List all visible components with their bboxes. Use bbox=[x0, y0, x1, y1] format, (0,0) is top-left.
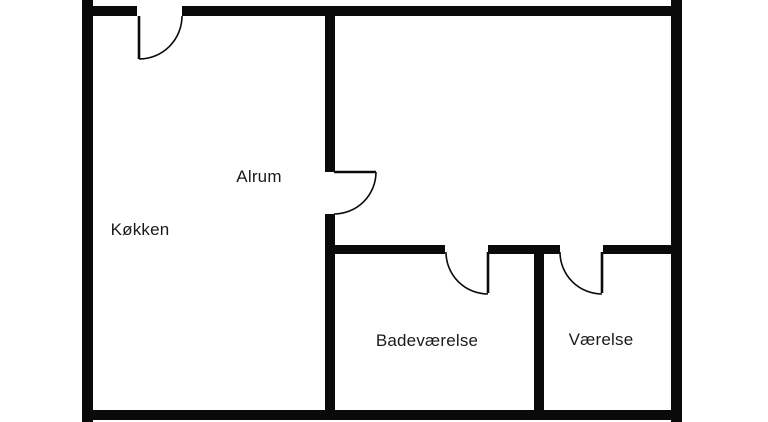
interior-wall-horizontal-segment-c bbox=[603, 245, 672, 254]
interior-wall-horizontal-segment-a bbox=[330, 245, 445, 254]
entry-door bbox=[139, 16, 182, 59]
outer-wall-right bbox=[671, 0, 682, 422]
badevaerelse-door bbox=[446, 252, 488, 294]
room-label-koekken: Køkken bbox=[111, 220, 170, 240]
vaerelse-door bbox=[560, 252, 602, 294]
interior-wall-horizontal-segment-b bbox=[488, 245, 560, 254]
entry-door-arc bbox=[139, 16, 182, 59]
room-label-alrum: Alrum bbox=[236, 167, 281, 187]
floor-plan: Køkken Alrum Badeværelse Værelse bbox=[0, 0, 768, 422]
outer-wall-top-right-segment bbox=[182, 6, 682, 16]
outer-wall-bottom bbox=[82, 410, 682, 420]
alrum-door bbox=[334, 172, 376, 214]
interior-wall-badevaerelse-vaerelse bbox=[534, 245, 544, 420]
outer-wall-top-left-segment bbox=[82, 6, 137, 16]
interior-wall-middle-upper-segment bbox=[325, 6, 335, 172]
room-label-vaerelse: Værelse bbox=[569, 330, 634, 350]
outer-wall-left bbox=[82, 0, 93, 422]
badevaerelse-door-arc bbox=[446, 252, 488, 294]
alrum-door-arc bbox=[334, 172, 376, 214]
door-swing-layer bbox=[0, 0, 768, 422]
vaerelse-door-arc bbox=[560, 252, 602, 294]
room-label-badevaerelse: Badeværelse bbox=[376, 331, 478, 351]
